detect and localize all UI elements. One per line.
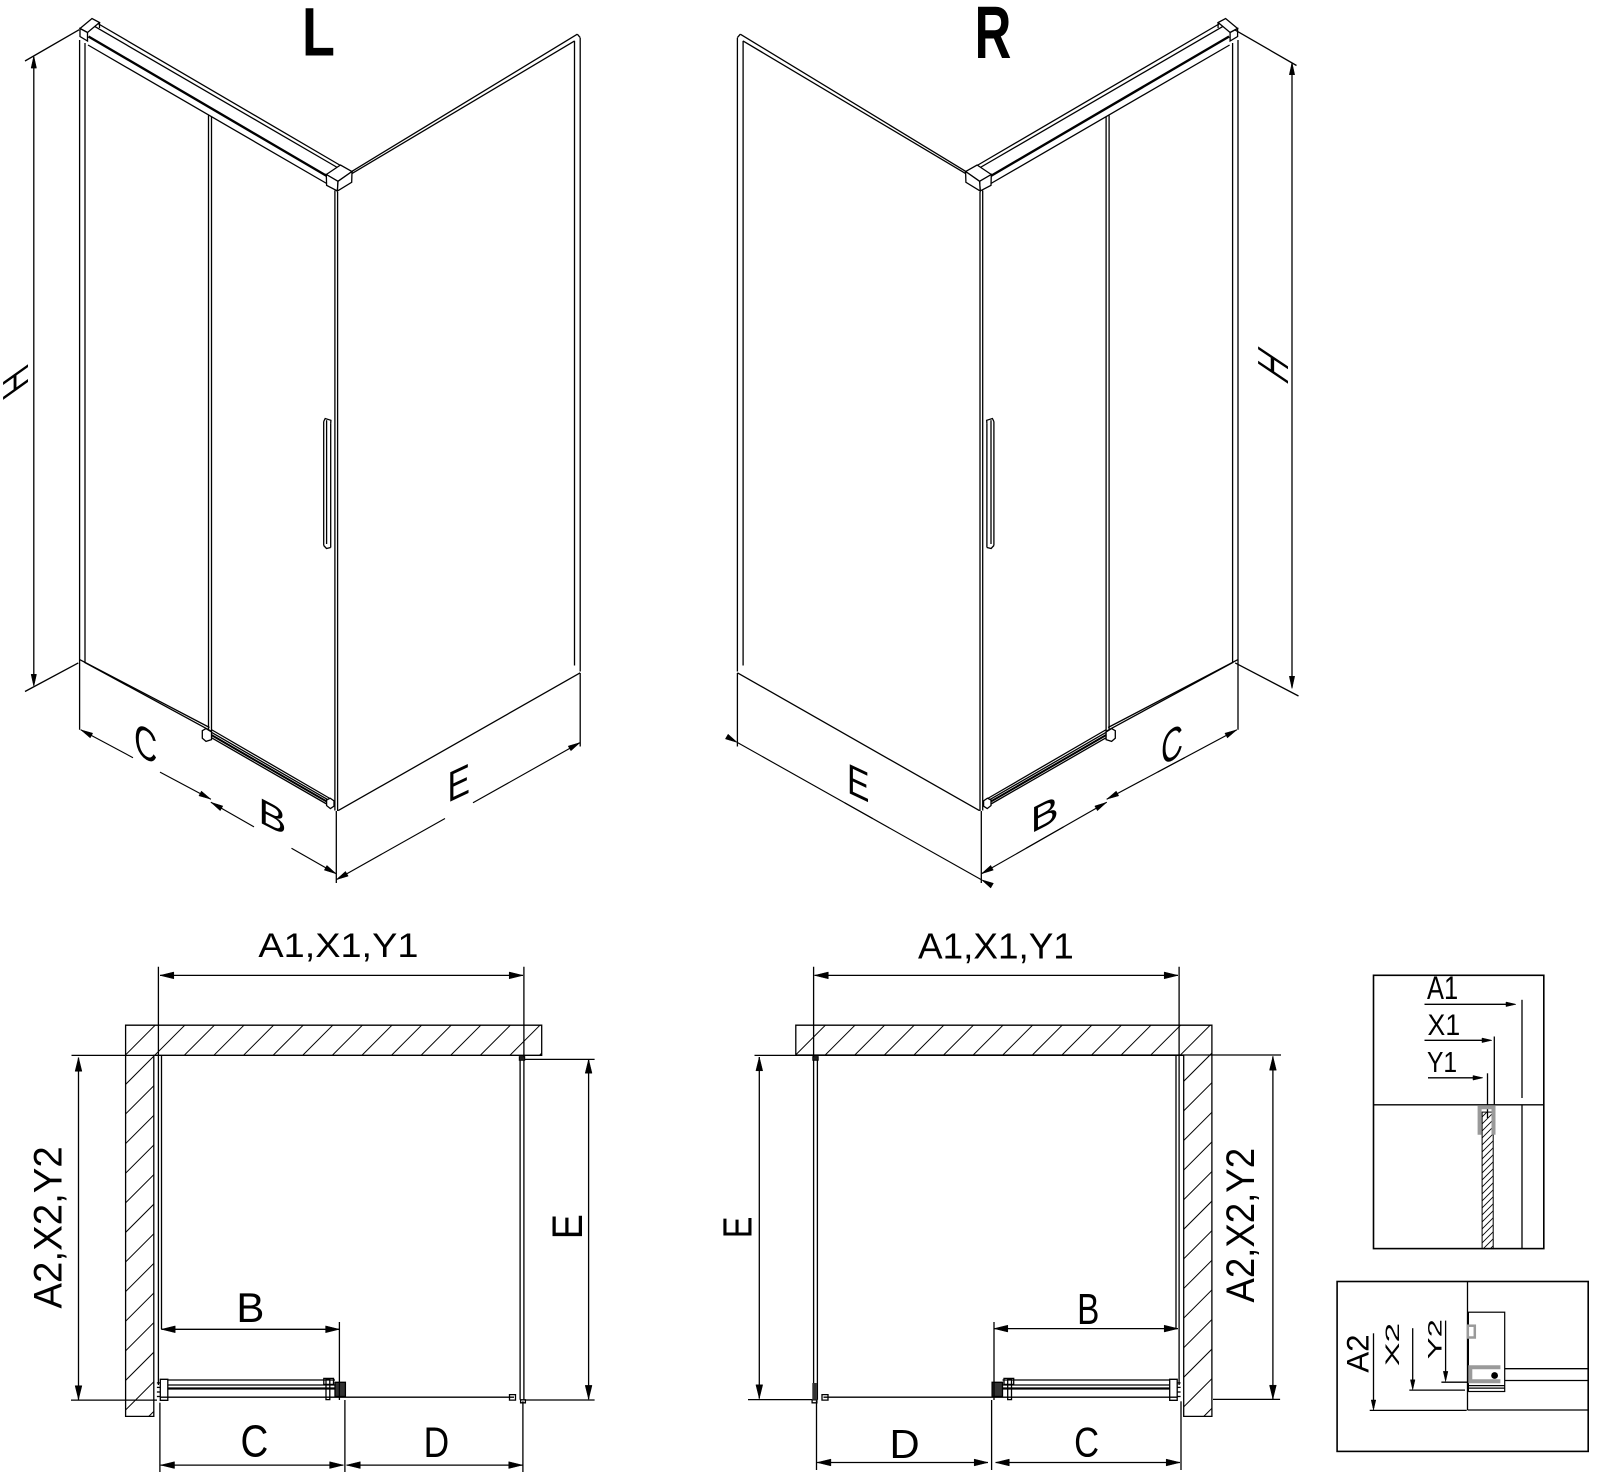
- svg-text:Y1: Y1: [1427, 1046, 1457, 1078]
- svg-text:X2: X2: [1382, 1323, 1404, 1366]
- svg-text:C: C: [1074, 1419, 1099, 1466]
- svg-text:R: R: [975, 0, 1012, 74]
- svg-text:B: B: [236, 1284, 264, 1331]
- svg-text:E: E: [544, 1214, 592, 1239]
- svg-text:Y2: Y2: [1424, 1319, 1445, 1359]
- svg-text:A2: A2: [1341, 1334, 1376, 1372]
- svg-text:A2,X2,Y2: A2,X2,Y2: [1218, 1148, 1263, 1303]
- svg-text:A1: A1: [1427, 971, 1458, 1006]
- svg-text:B: B: [1077, 1286, 1099, 1334]
- svg-text:D: D: [889, 1420, 919, 1467]
- svg-text:C: C: [240, 1415, 268, 1466]
- svg-text:A2,X2,Y2: A2,X2,Y2: [27, 1146, 71, 1308]
- svg-text:E: E: [715, 1217, 761, 1239]
- svg-text:X1: X1: [1428, 1009, 1461, 1042]
- svg-text:D: D: [424, 1419, 450, 1467]
- svg-text:A1,X1,Y1: A1,X1,Y1: [918, 926, 1074, 966]
- svg-text:L: L: [302, 0, 335, 71]
- svg-text:A1,X1,Y1: A1,X1,Y1: [258, 926, 418, 965]
